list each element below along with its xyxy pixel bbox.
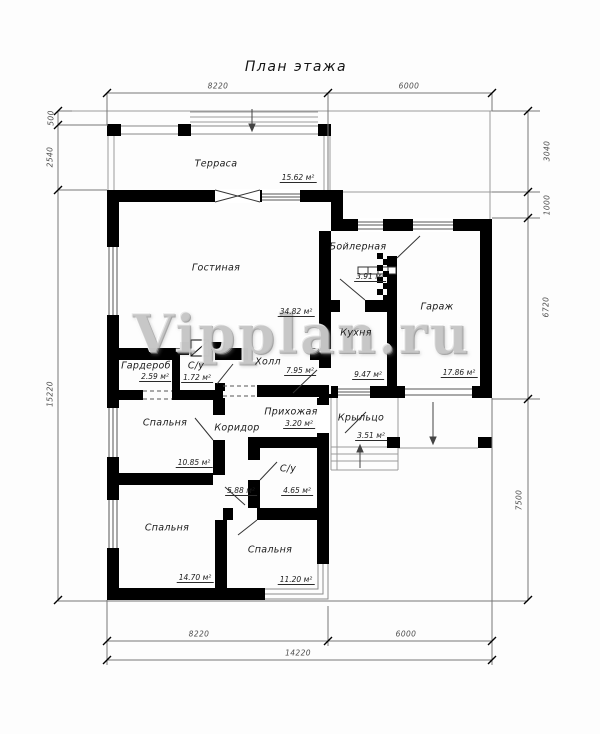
porch-outline (331, 398, 478, 470)
room-label-hall: Холл (255, 357, 281, 368)
room-area-kitchen: 9.47 м² (352, 370, 384, 380)
room-area-boiler: 3.91 м² (354, 272, 386, 282)
room-area-wardrobe: 2.59 м² (139, 372, 171, 382)
room-label-boiler: Бойлерная (330, 242, 387, 253)
room-area-terrace: 15.62 м² (280, 173, 317, 183)
dim-top-8220: 8220 (208, 82, 229, 91)
dim-bottom-8220: 8220 (189, 630, 210, 639)
room-area-living: 34.82 м² (278, 307, 315, 317)
dim-bottom-14220: 14220 (285, 649, 311, 658)
room-area-garage: 17.86 м² (441, 368, 478, 378)
dim-left-500: 500 (47, 110, 56, 126)
room-area-porch: 3.51 м² (355, 431, 387, 441)
room-area-bedroom3: 11.20 м² (278, 575, 315, 585)
room-label-entry: Прихожая (264, 407, 317, 418)
room-label-porch: Крыльцо (338, 413, 384, 424)
dim-right-6720: 6720 (542, 297, 551, 318)
room-label-bedroom3: Спальня (248, 545, 292, 556)
plan-title: План этажа (245, 59, 347, 75)
floorplan-page: Vipplan.ru План этажа Терраса 15.62 м² Г… (0, 0, 600, 734)
room-label-corridor: Коридор (214, 423, 259, 434)
room-label-living: Гостиная (192, 263, 240, 274)
dim-right-1000: 1000 (543, 195, 552, 216)
room-label-terrace: Терраса (195, 159, 238, 170)
room-area-bedroom1: 10.85 м² (176, 458, 213, 468)
room-area-hall: 7.95 м² (284, 366, 316, 376)
room-label-bath-big: С/у (280, 464, 296, 475)
room-label-bedroom2: Спальня (145, 523, 189, 534)
dim-top-6000: 6000 (399, 82, 420, 91)
room-area-entry: 3.20 м² (283, 419, 315, 429)
room-area-corridor: 5.88 м² (225, 486, 257, 496)
dim-right-3040: 3040 (543, 141, 552, 162)
room-area-bedroom2: 14.70 м² (177, 573, 214, 583)
dim-right-7500: 7500 (515, 490, 524, 511)
room-label-bedroom1: Спальня (143, 418, 187, 429)
room-label-garage: Гараж (420, 302, 453, 313)
dim-left-2540: 2540 (46, 147, 55, 168)
room-area-bath-big: 4.65 м² (281, 486, 313, 496)
room-label-kitchen: Кухня (340, 328, 371, 339)
room-label-wardrobe: Гардероб (121, 361, 171, 372)
dim-left-15220: 15220 (46, 381, 55, 407)
room-area-bath-small: 1.72 м² (181, 373, 213, 383)
room-label-bath-small: С/у (188, 361, 204, 372)
dim-bottom-6000: 6000 (396, 630, 417, 639)
